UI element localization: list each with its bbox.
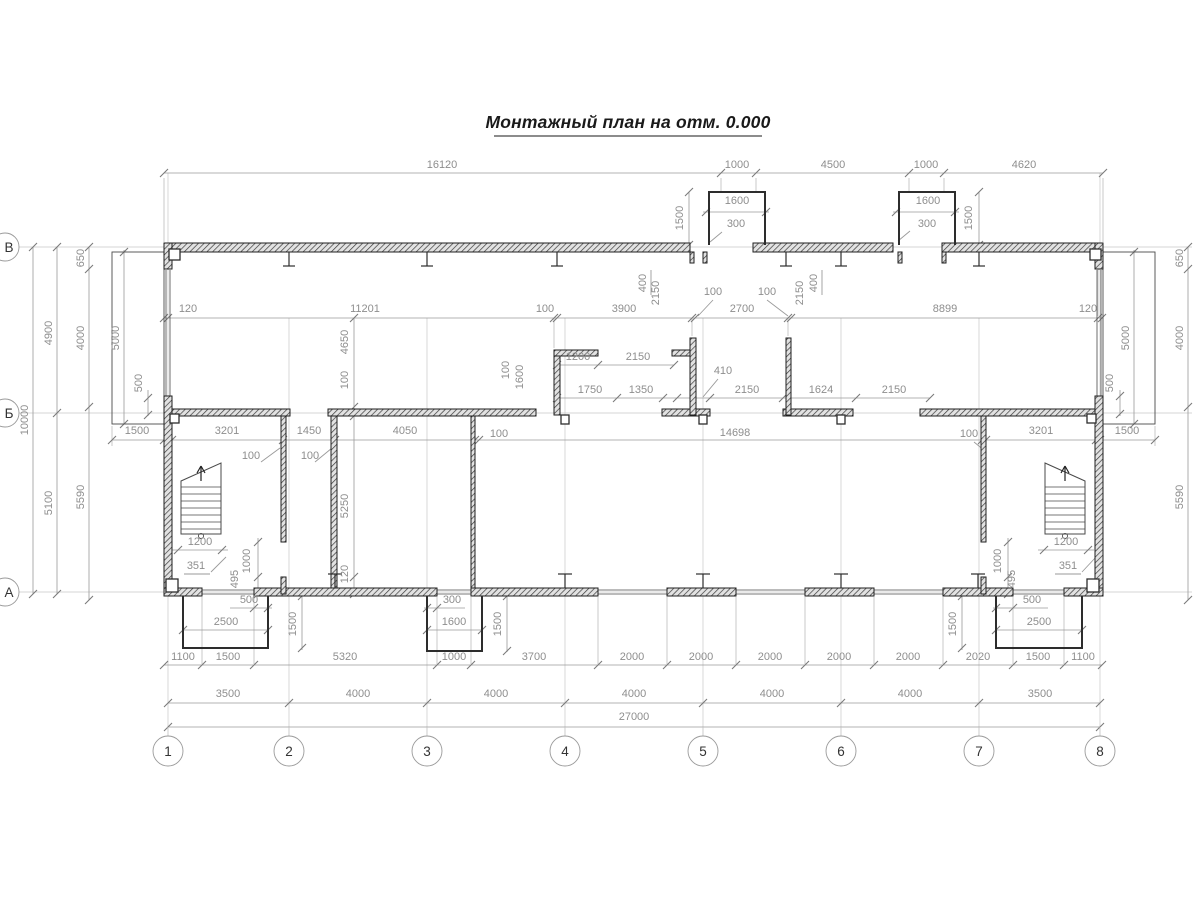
wall-segment [471, 416, 475, 588]
dimension-label: 100 [339, 371, 351, 389]
wall-segment [942, 243, 1103, 252]
column-squares [166, 249, 1101, 592]
dimension-label: 16120 [427, 159, 458, 171]
axis-label: А [4, 585, 13, 600]
axis-bubble-row: А [0, 578, 19, 606]
axis-label: 2 [285, 744, 293, 759]
axis-label: 4 [561, 744, 569, 759]
dimension-label: 2150 [735, 384, 759, 396]
dimension-label: 500 [1104, 374, 1116, 392]
wall-segments [164, 243, 1103, 596]
leader-line [261, 448, 280, 462]
dimension-label: 1000 [725, 159, 749, 171]
dimension-label: 1200 [566, 351, 590, 363]
dimension-label: 120 [339, 565, 351, 583]
dimension-label: 3700 [522, 651, 546, 663]
wall-segment [690, 252, 694, 263]
dimension-label: 3900 [612, 303, 636, 315]
leader-line [698, 300, 713, 316]
wall-segment [690, 338, 696, 415]
axis-label: Б [5, 406, 14, 421]
dimension-lines [33, 173, 1188, 727]
axis-bubble-column: 7 [964, 727, 994, 766]
dimension-label: 2020 [966, 651, 990, 663]
dimension-label: 495 [1006, 570, 1018, 588]
dimension-label: 1500 [125, 425, 149, 437]
leader-line [703, 379, 718, 397]
axis-bubble-row: В [0, 233, 19, 261]
axis-bubble-row: Б [0, 399, 19, 427]
wall-segment [164, 409, 290, 416]
axis-bubble-column: 3 [412, 727, 442, 766]
dimension-label: 500 [1023, 594, 1041, 606]
dimension-label: 1000 [914, 159, 938, 171]
wall-segment [667, 588, 736, 596]
axis-label: 1 [164, 744, 172, 759]
dimension-label: 351 [1059, 560, 1077, 572]
dimension-label: 4620 [1012, 159, 1036, 171]
dimension-label: 1200 [188, 536, 212, 548]
page-title: Монтажный план на отм. 0.000 [485, 112, 770, 132]
dimension-label: 5590 [75, 485, 87, 509]
dimension-label: 1000 [992, 549, 1004, 573]
dimension-label: 5000 [110, 326, 122, 350]
dimension-label: 100 [960, 428, 978, 440]
dimension-label: 4000 [760, 688, 784, 700]
dimension-label: 300 [727, 218, 745, 230]
axis-bubble-column: 8 [1085, 727, 1115, 766]
dimension-ticks [29, 169, 1192, 731]
dimension-label: 4500 [821, 159, 845, 171]
leader-line [211, 557, 226, 572]
axis-label: 3 [423, 744, 431, 759]
axis-bubble-column: 1 [153, 727, 183, 766]
axis-label: В [4, 240, 13, 255]
dimension-label: 1000 [442, 651, 466, 663]
column-square [1087, 579, 1099, 592]
dimension-label: 3500 [1028, 688, 1052, 700]
dimension-label: 300 [918, 218, 936, 230]
dimension-label: 410 [714, 365, 732, 377]
axis-label: 6 [837, 744, 845, 759]
dimension-label: 1000 [241, 549, 253, 573]
stair-flight [181, 463, 221, 539]
axis-bubble-column: 6 [826, 727, 856, 766]
stairs [181, 463, 1085, 539]
leader-line [710, 232, 722, 242]
axis-bubble-column: 2 [274, 727, 304, 766]
dimension-label: 2000 [896, 651, 920, 663]
dimension-label: 2500 [214, 616, 238, 628]
wall-segment [898, 252, 902, 263]
grid-axis-lines [19, 173, 1192, 736]
dimension-label: 100 [758, 286, 776, 298]
wall-segment [471, 588, 598, 596]
dimension-label: 120 [179, 303, 197, 315]
dimension-label: 4650 [339, 330, 351, 354]
dimension-label: 4050 [393, 425, 417, 437]
dimension-label: 4000 [1174, 326, 1186, 350]
dimension-label: 1500 [287, 612, 299, 636]
axis-label: 5 [699, 744, 707, 759]
wall-segment [981, 577, 986, 594]
wall-segment [672, 350, 690, 356]
column-square [561, 415, 569, 424]
dimension-label: 5250 [339, 494, 351, 518]
dimension-label: 11201 [350, 303, 380, 315]
dimension-label: 1500 [963, 206, 975, 230]
dimension-label: 5320 [333, 651, 357, 663]
dimension-label: 2150 [882, 384, 906, 396]
stair-flight [1045, 463, 1085, 539]
dimension-label: 4000 [622, 688, 646, 700]
wall-segment [331, 416, 337, 588]
wall-segment [164, 243, 690, 252]
wall-segment [554, 350, 560, 415]
dimension-label: 2000 [758, 651, 782, 663]
dimension-label: 1500 [674, 206, 686, 230]
dimension-label: 2150 [794, 281, 806, 305]
column-square [699, 415, 707, 424]
drawing-sheet: 1612010004500100046201600300160030015001… [0, 0, 1200, 900]
leader-line [1082, 557, 1096, 572]
dimension-label: 10000 [19, 405, 31, 436]
wall-segment [328, 409, 536, 416]
axis-bubble-column: 5 [688, 727, 718, 766]
dimension-label: 2000 [620, 651, 644, 663]
dimension-label: 1500 [1026, 651, 1050, 663]
dimension-label: 1500 [1115, 425, 1139, 437]
dimension-label: 1500 [947, 612, 959, 636]
dimension-label: 2500 [1027, 616, 1051, 628]
dimension-label: 1600 [442, 616, 466, 628]
dimension-label: 8899 [933, 303, 957, 315]
dimension-label: 100 [490, 428, 508, 440]
dimension-label: 500 [240, 594, 258, 606]
dimension-label: 14698 [720, 427, 751, 439]
column-square [170, 414, 179, 423]
dimension-label: 4000 [484, 688, 508, 700]
dimension-label: 1200 [1054, 536, 1078, 548]
dimension-label: 1600 [514, 365, 526, 389]
wall-segment [281, 416, 286, 542]
wall-segment [164, 396, 172, 588]
axis-label: 7 [975, 744, 983, 759]
wall-segment [703, 252, 707, 263]
wall-segment [1095, 396, 1103, 588]
dimension-label: 500 [133, 374, 145, 392]
dimension-label: 300 [443, 594, 461, 606]
dimension-label: 120 [1079, 303, 1097, 315]
dimension-label: 4000 [898, 688, 922, 700]
dimension-label: 1100 [1071, 651, 1095, 663]
leader-line [767, 300, 788, 316]
dimension-label: 1600 [916, 195, 940, 207]
dimension-label: 3201 [215, 425, 239, 437]
dimension-label: 1750 [578, 384, 602, 396]
dimension-label: 1350 [629, 384, 653, 396]
wall-segment [942, 252, 946, 263]
column-square [166, 579, 178, 592]
dimension-label: 1450 [297, 425, 321, 437]
wall-segment [920, 409, 1096, 416]
dimension-label: 2150 [650, 281, 662, 305]
porch-outlines [183, 192, 1082, 651]
wall-segment [786, 338, 791, 415]
dimension-label: 100 [301, 450, 319, 462]
column-square [1090, 249, 1101, 260]
dimension-label: 1500 [216, 651, 240, 663]
dimension-label: 5590 [1174, 485, 1186, 509]
dimension-label: 27000 [619, 711, 650, 723]
dimension-label: 1500 [492, 612, 504, 636]
wall-segment [281, 577, 286, 594]
dimension-label: 100 [536, 303, 554, 315]
dimension-label: 400 [637, 274, 649, 292]
dimension-label: 100 [500, 361, 512, 379]
axis-label: 8 [1096, 744, 1104, 759]
wall-segment [805, 588, 874, 596]
dimension-label: 650 [1174, 249, 1186, 267]
dimension-label: 2700 [730, 303, 754, 315]
dimension-label: 3500 [216, 688, 240, 700]
dimension-label: 4000 [75, 326, 87, 350]
dimension-label: 1100 [171, 651, 195, 663]
wall-segment [943, 588, 1013, 596]
dimension-label: 2000 [689, 651, 713, 663]
floor-plan-canvas: 1612010004500100046201600300160030015001… [0, 0, 1200, 900]
column-square [1087, 414, 1096, 423]
dimension-label: 495 [229, 570, 241, 588]
axis-bubble-column: 4 [550, 727, 580, 766]
dimension-label: 5000 [1120, 326, 1132, 350]
dimension-label: 351 [187, 560, 205, 572]
dimension-label: 5100 [43, 491, 55, 515]
dimension-label: 2000 [827, 651, 851, 663]
dimension-label: 650 [75, 249, 87, 267]
dimension-label: 100 [242, 450, 260, 462]
dimension-label: 4000 [346, 688, 370, 700]
column-square [169, 249, 180, 260]
column-square [837, 415, 845, 424]
dimension-label: 1624 [809, 384, 833, 396]
dimension-label: 1600 [725, 195, 749, 207]
dimension-label: 100 [704, 286, 722, 298]
wall-segment [753, 243, 893, 252]
dimension-label: 400 [808, 274, 820, 292]
wall-segment [981, 416, 986, 542]
dimension-label: 2150 [626, 351, 650, 363]
dimension-label: 3201 [1029, 425, 1053, 437]
dimension-label: 4900 [43, 321, 55, 345]
